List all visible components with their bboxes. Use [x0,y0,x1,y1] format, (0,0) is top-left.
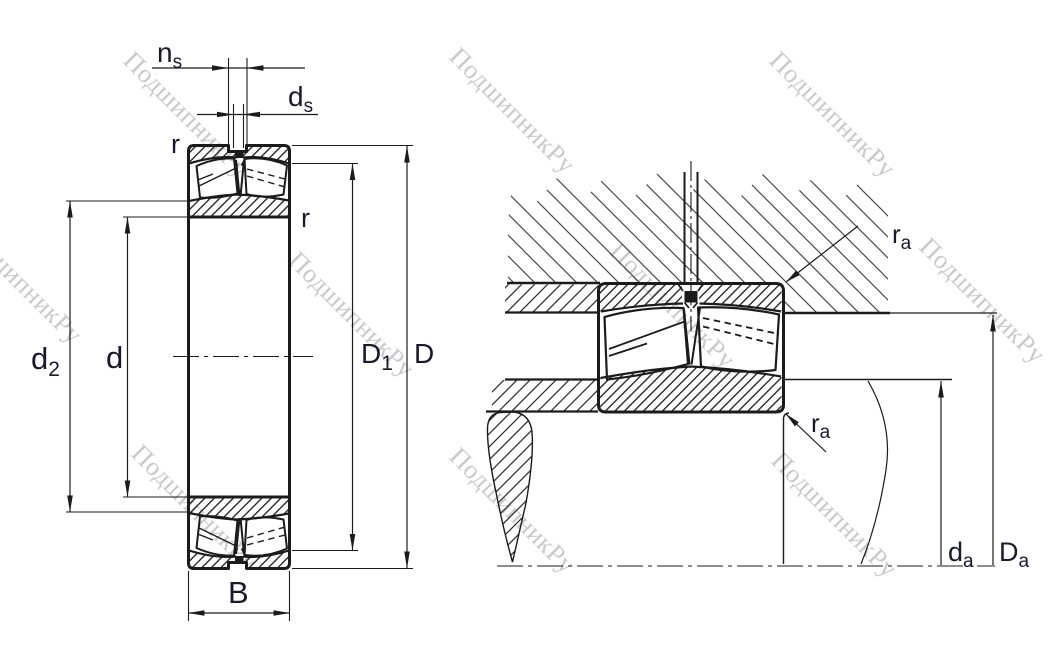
label-ns: ns [157,37,182,73]
watermark-text: ПодшипникРу [283,246,421,384]
label-da: da [948,537,974,572]
label-ra-housing: ra [892,219,912,254]
shaft-shoulder-hatch [492,380,598,411]
label-ns-sub: s [173,52,183,73]
mounting-view [486,161,997,566]
label-ns-base: n [157,37,173,68]
label-r-outer: r [171,129,180,159]
label-ra-shaft: ra [811,408,831,443]
label-d2: d2 [31,341,60,381]
label-r-inner: r [301,203,310,233]
housing-abutment-hatch [505,285,598,313]
label-B: B [228,575,249,610]
label-D: D [414,338,434,369]
label-ds: ds [288,81,313,117]
dimension-Da [990,315,996,565]
watermark-text: ПодшипникРу [914,232,1050,370]
bearing-drawing-page: ПодшипникРу ПодшипникРу ПодшипникРу Подш… [0,0,1050,650]
watermark-text: ПодшипникРу [444,42,582,180]
label-ds-base: d [288,81,304,112]
label-d: d [106,340,123,375]
label-ds-sub: s [304,96,314,117]
watermark-text: ПодшипникРу [766,446,904,584]
label-Da: Da [999,537,1030,572]
watermark-text: ПодшипникРу [764,46,902,184]
technical-drawing: ПодшипникРу ПодшипникРу ПодшипникРу Подш… [0,0,1050,650]
watermark-text: ПодшипникРу [0,212,88,350]
dimension-da [938,381,944,565]
